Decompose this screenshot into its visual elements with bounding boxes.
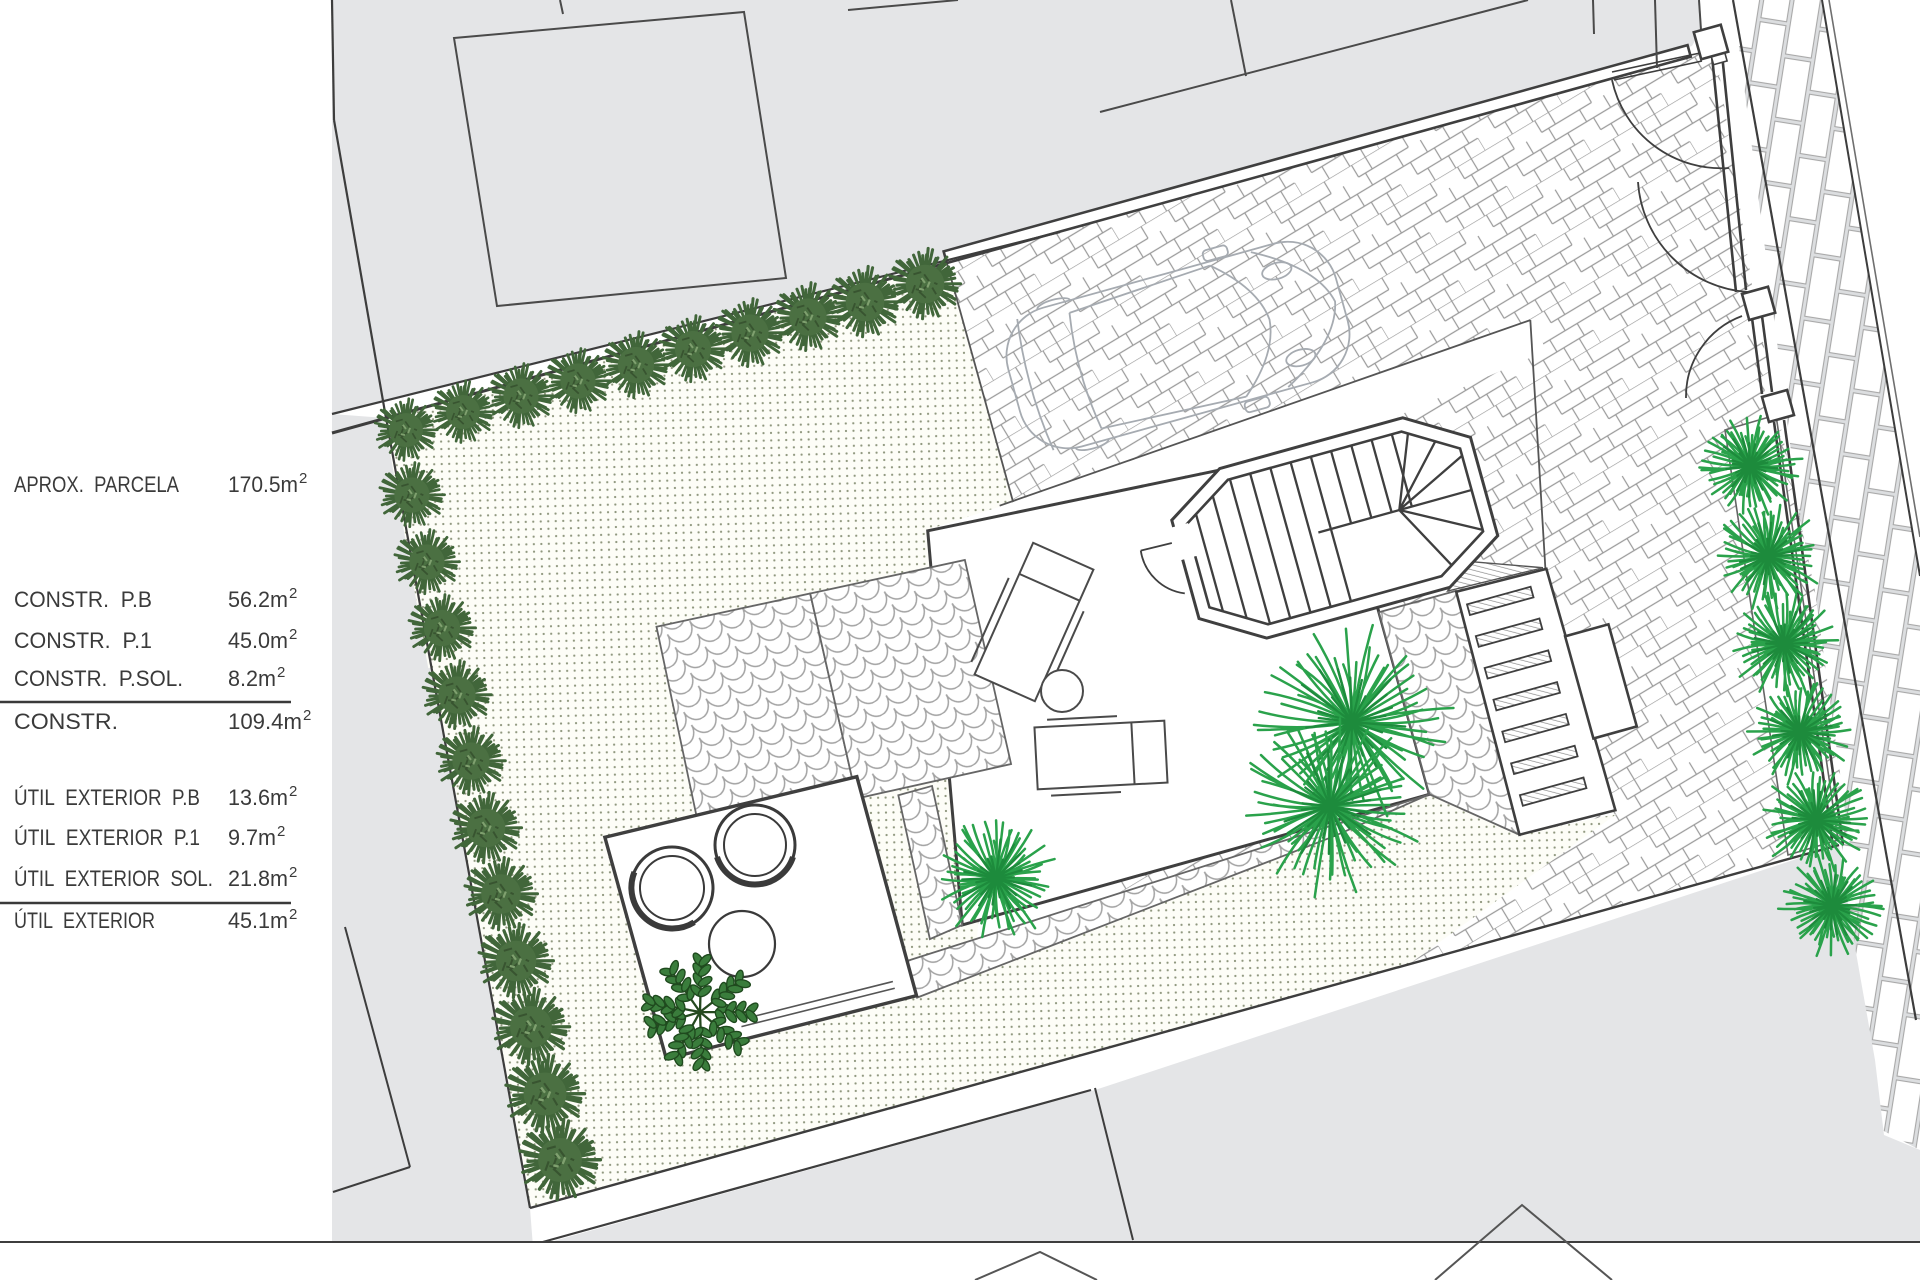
svg-text:21.8m: 21.8m	[228, 866, 288, 891]
svg-text:ÚTIL EXTERIOR P.B: ÚTIL EXTERIOR P.B	[14, 785, 200, 810]
svg-text:2: 2	[289, 783, 297, 800]
svg-text:CONSTR.: CONSTR.	[14, 709, 118, 734]
svg-text:ÚTIL EXTERIOR: ÚTIL EXTERIOR	[14, 908, 155, 933]
svg-text:CONSTR. P.SOL.: CONSTR. P.SOL.	[14, 666, 183, 691]
svg-text:2: 2	[289, 906, 297, 923]
svg-text:170.5m: 170.5m	[228, 472, 298, 497]
svg-text:CONSTR. P.1: CONSTR. P.1	[14, 628, 152, 653]
svg-text:56.2m: 56.2m	[228, 587, 288, 612]
svg-text:45.0m: 45.0m	[228, 628, 288, 653]
svg-text:2: 2	[277, 823, 285, 840]
svg-text:13.6m: 13.6m	[228, 785, 288, 810]
svg-text:8.2m: 8.2m	[228, 666, 276, 691]
svg-text:ÚTIL EXTERIOR P.1: ÚTIL EXTERIOR P.1	[14, 825, 200, 850]
svg-text:109.4m: 109.4m	[228, 709, 302, 734]
svg-text:9.7m: 9.7m	[228, 825, 276, 850]
svg-text:APROX. PARCELA: APROX. PARCELA	[14, 472, 179, 497]
svg-text:ÚTIL EXTERIOR SOL.: ÚTIL EXTERIOR SOL.	[14, 866, 213, 891]
svg-text:CONSTR. P.B: CONSTR. P.B	[14, 587, 152, 612]
svg-text:45.1m: 45.1m	[228, 908, 288, 933]
svg-text:2: 2	[289, 585, 297, 602]
svg-text:2: 2	[289, 864, 297, 881]
svg-text:2: 2	[303, 707, 311, 724]
svg-text:2: 2	[299, 470, 307, 487]
svg-text:2: 2	[289, 626, 297, 643]
svg-text:2: 2	[277, 664, 285, 681]
